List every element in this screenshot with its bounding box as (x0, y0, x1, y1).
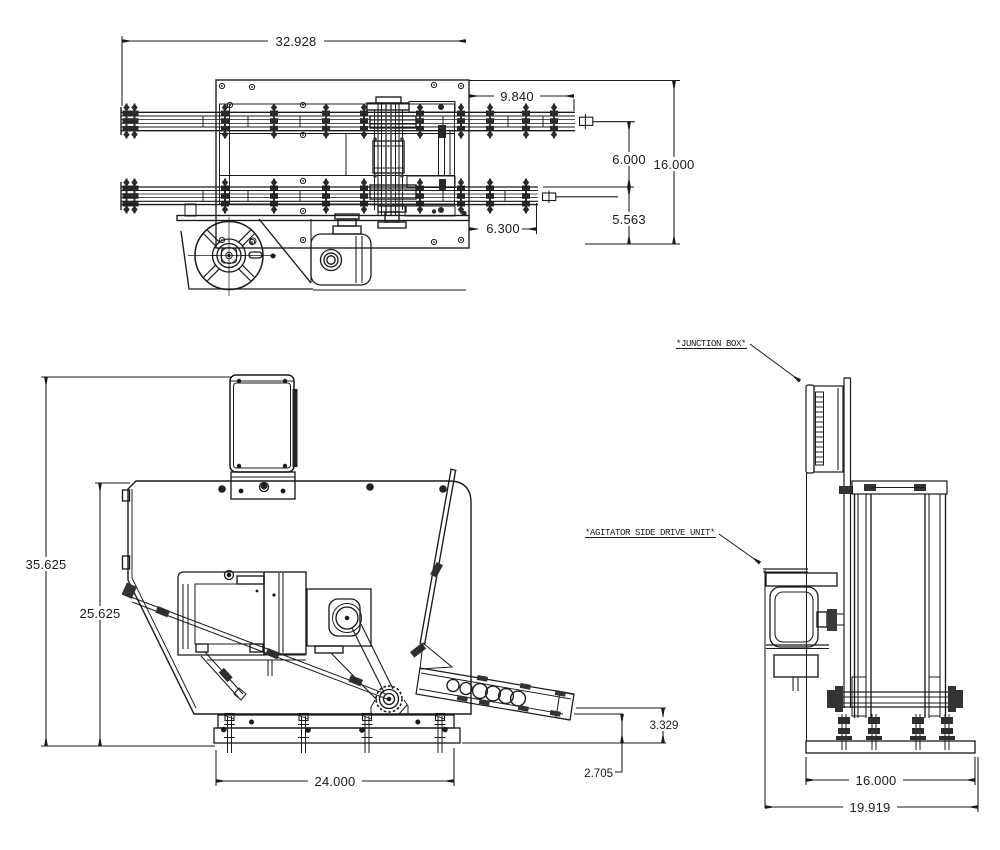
svg-text:6.300: 6.300 (486, 221, 520, 236)
svg-text:16.000: 16.000 (654, 157, 695, 172)
svg-text:19.919: 19.919 (850, 800, 891, 815)
svg-text:32.928: 32.928 (276, 34, 317, 49)
svg-text:25.625: 25.625 (80, 606, 121, 621)
svg-text:35.625: 35.625 (26, 557, 67, 572)
svg-text:9.840: 9.840 (500, 89, 534, 104)
svg-text:*JUNCTION BOX*: *JUNCTION BOX* (676, 339, 746, 349)
svg-text:2.705: 2.705 (584, 768, 613, 780)
svg-text:*AGITATOR SIDE DRIVE UNIT*: *AGITATOR SIDE DRIVE UNIT* (585, 528, 715, 538)
svg-text:24.000: 24.000 (315, 774, 356, 789)
svg-text:16.000: 16.000 (856, 773, 897, 788)
svg-text:5.563: 5.563 (612, 212, 646, 227)
svg-text:6.000: 6.000 (612, 152, 646, 167)
svg-text:3.329: 3.329 (650, 720, 679, 732)
